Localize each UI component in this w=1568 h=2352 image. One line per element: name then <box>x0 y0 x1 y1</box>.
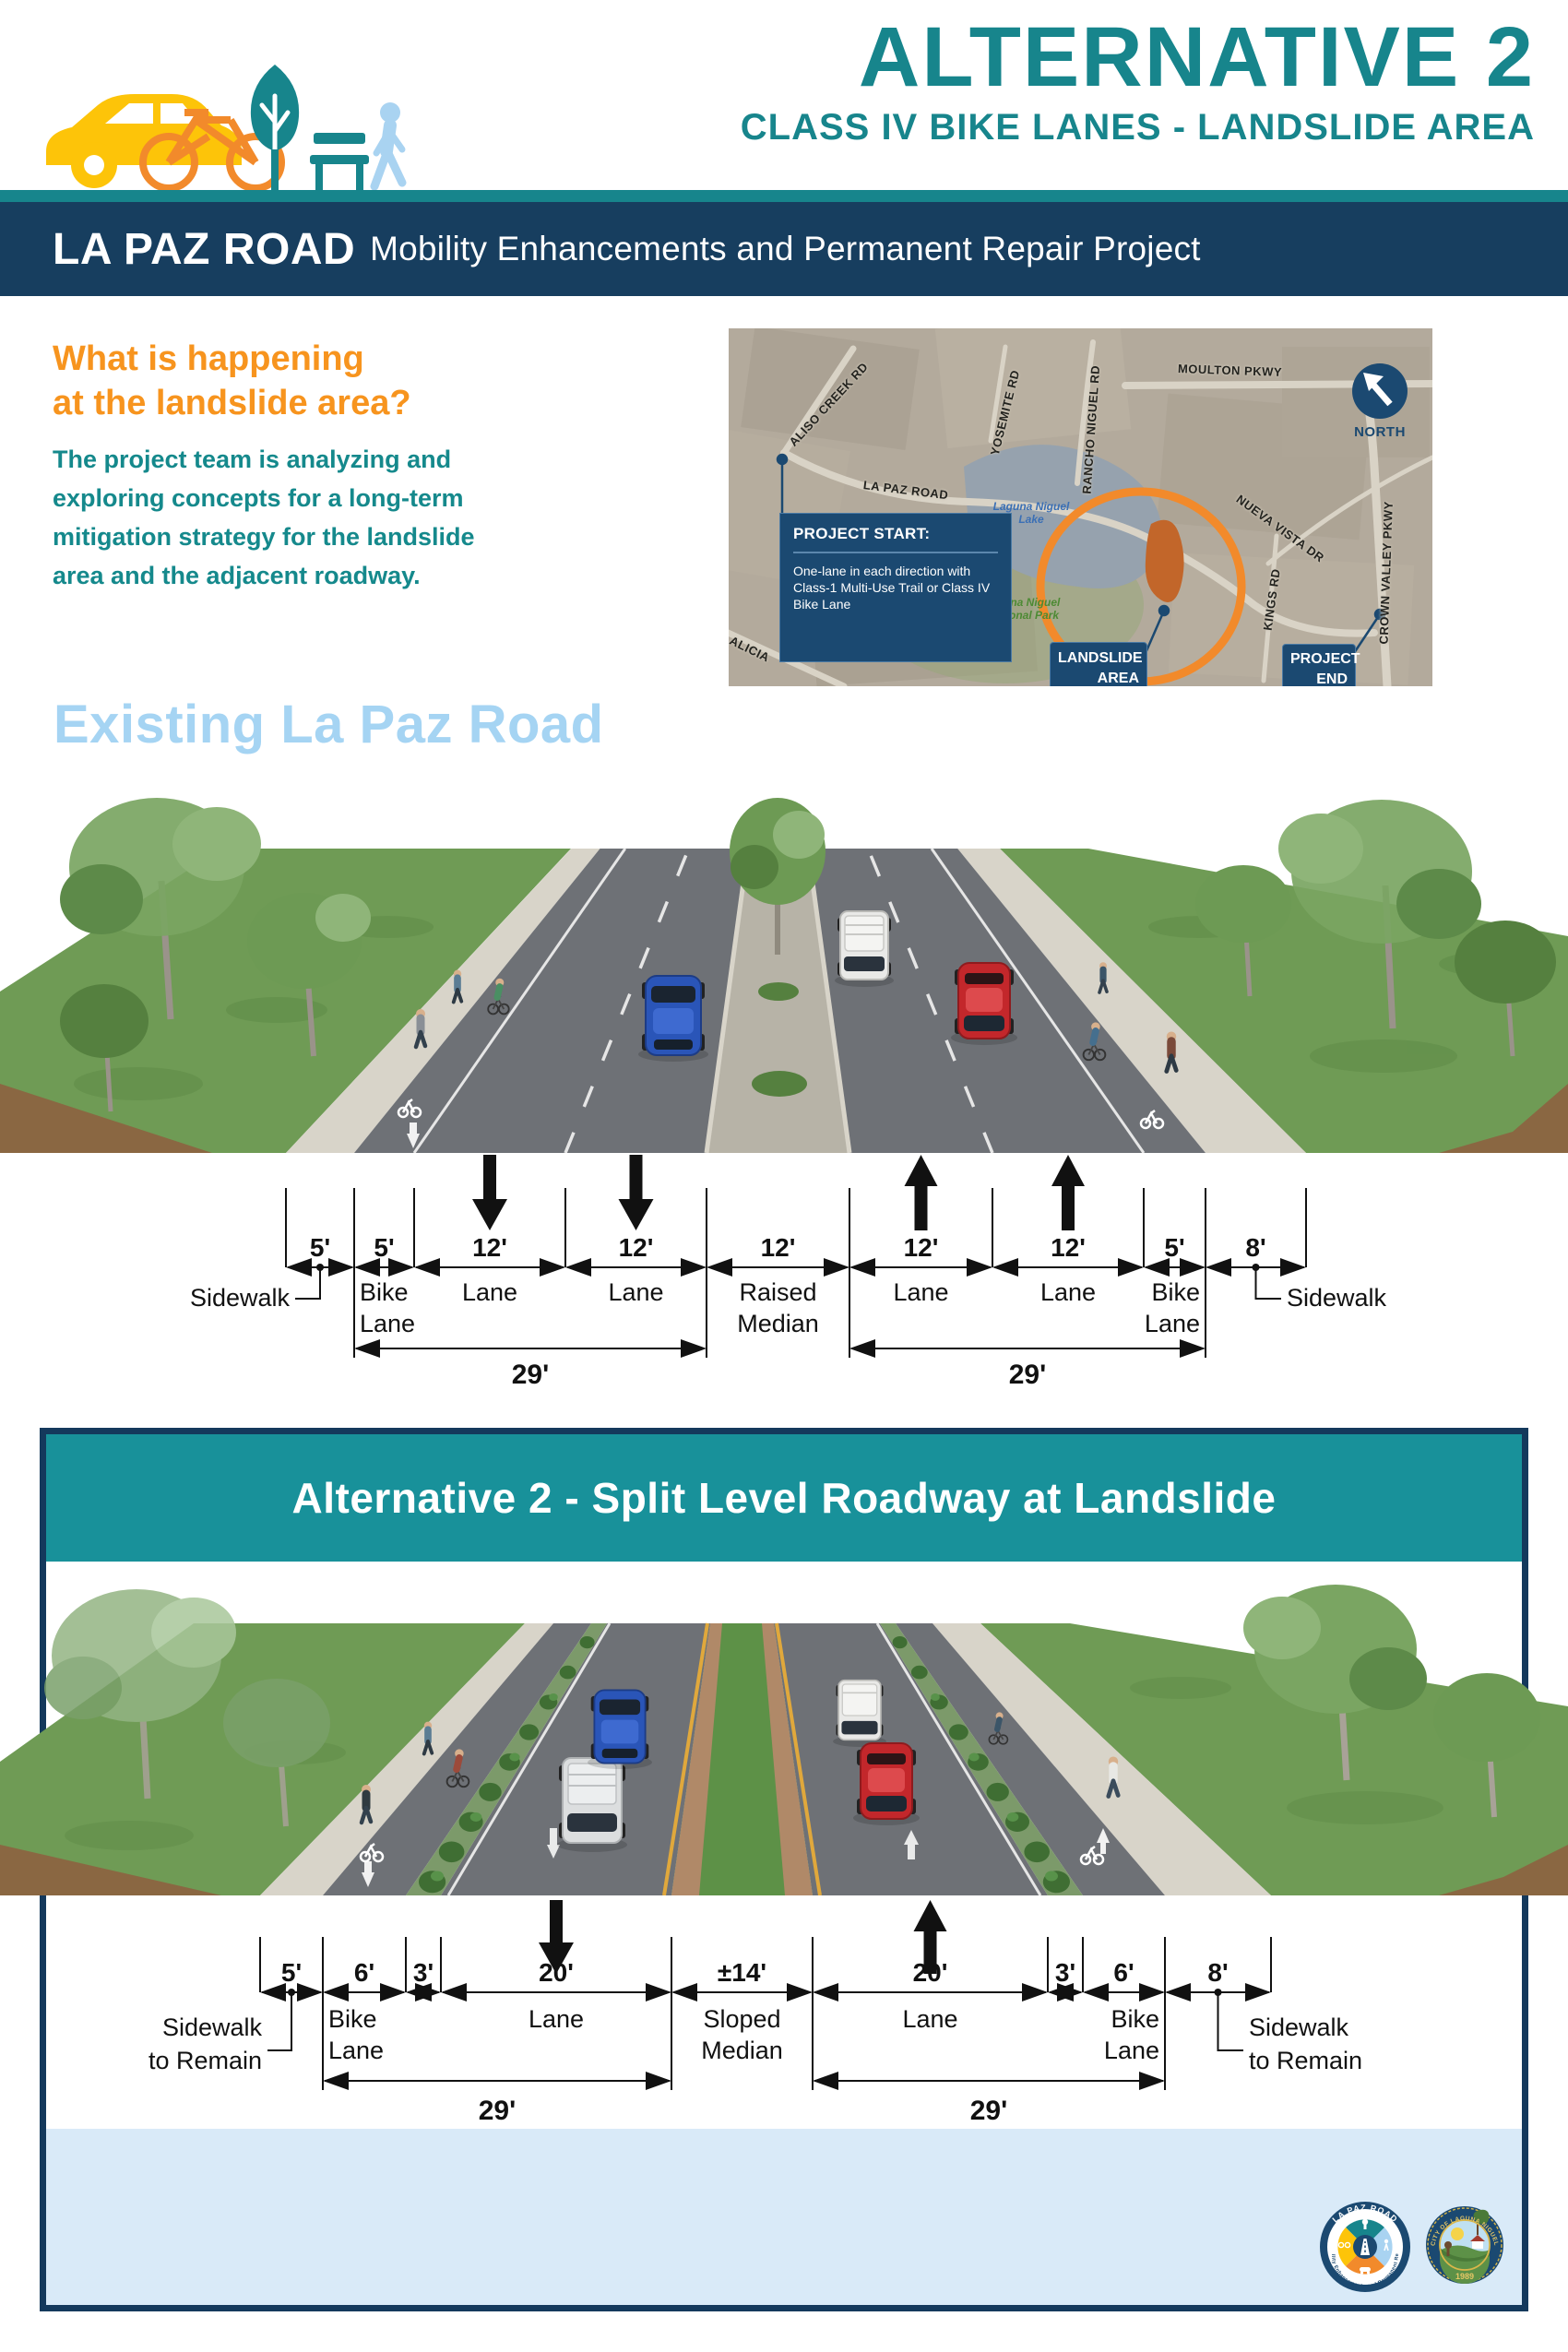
dim-value: 5' <box>374 1233 394 1262</box>
segment-label: Lane <box>608 1278 663 1306</box>
dim-value: 5' <box>281 1958 302 1987</box>
footer-band <box>46 2129 1522 2305</box>
north-arrow-icon <box>1352 363 1408 419</box>
dim-value: 8' <box>1245 1233 1265 1262</box>
dim-value: ±14' <box>718 1958 766 1987</box>
bench-icon <box>310 133 369 191</box>
dim-value: 6' <box>1113 1958 1134 1987</box>
dim-value: 12' <box>1051 1233 1086 1262</box>
segment-label: Lane <box>462 1278 517 1306</box>
segment-label: Lane <box>1040 1278 1096 1306</box>
intro-body: The project team is analyzing and explor… <box>53 441 500 595</box>
segment-label: Median <box>737 1310 819 1337</box>
truck-white <box>835 911 894 987</box>
truck-silver <box>557 1758 627 1852</box>
segment-label: Sidewalk <box>162 2013 263 2041</box>
existing-dimension-diagram: 5' 5' 12' 12' 12' 12' 12' 5' 8' Sidewalk… <box>0 1153 1568 1395</box>
dim-value: 5' <box>1164 1233 1184 1262</box>
segment-label: Bike <box>328 2005 377 2033</box>
segment-label: Lane <box>1145 1310 1200 1337</box>
landslide-area-callout: LANDSLIDE AREA <box>1050 642 1147 686</box>
page-subtitle: CLASS IV BIKE LANES - LANDSLIDE AREA <box>741 107 1535 148</box>
dim-value: 12' <box>472 1233 507 1262</box>
alternative-roadway-rendering <box>0 1568 1568 1895</box>
landslide-shape <box>1146 520 1184 602</box>
seal-year: 1989 <box>1455 2272 1474 2281</box>
dim-value: 12' <box>619 1233 654 1262</box>
span-value: 29' <box>970 2096 1008 2126</box>
project-start-callout: PROJECT START: One-lane in each directio… <box>779 513 1012 662</box>
segment-label: Bike <box>360 1278 409 1306</box>
segment-label: Sloped <box>703 2005 780 2033</box>
existing-roadway-rendering <box>0 779 1568 1153</box>
segment-label: to Remain <box>1249 2047 1362 2074</box>
segment-label: Sidewalk <box>190 1284 291 1312</box>
segment-label: Lane <box>902 2005 957 2033</box>
pedestrian-icon <box>374 102 402 186</box>
car-blue <box>588 1690 652 1769</box>
city-seal-logo: CITY OF LAGUNA NIGUEL 1989 <box>1426 2206 1503 2284</box>
dim-value: 20' <box>539 1958 574 1987</box>
segment-label: Sidewalk <box>1249 2013 1349 2041</box>
segment-label: Lane <box>328 2037 384 2064</box>
truck-white <box>833 1681 886 1747</box>
la-paz-road-logo: LA PAZ ROAD Mobility Enhancements and Pe… <box>1320 2202 1410 2292</box>
car-red <box>951 963 1017 1045</box>
dim-value: 12' <box>761 1233 796 1262</box>
segment-label: Raised <box>739 1278 816 1306</box>
teal-divider <box>0 190 1568 202</box>
segment-label: Sidewalk <box>1287 1284 1387 1312</box>
banner-road-name: LA PAZ ROAD <box>53 224 355 275</box>
segment-label: Lane <box>1104 2037 1159 2064</box>
dim-value: 8' <box>1207 1958 1228 1987</box>
dim-value: 5' <box>310 1233 330 1262</box>
car-blue <box>638 976 708 1062</box>
alternative-section-heading: Alternative 2 - Split Level Roadway at L… <box>46 1434 1522 1562</box>
page-title: ALTERNATIVE 2 <box>741 15 1535 100</box>
north-label: NORTH <box>1334 424 1426 440</box>
existing-section-heading: Existing La Paz Road <box>53 694 604 755</box>
span-value: 29' <box>1009 1360 1047 1390</box>
project-location-map: ALISO CREEK RD YOSEMITE RD RANCHO NIGUEL… <box>729 328 1432 686</box>
alternative-dimension-diagram: 5' 6' 3' 20' ±14' 20' 3' 6' 8' Sidewalk … <box>0 1895 1568 2133</box>
segment-label: Lane <box>360 1310 415 1337</box>
tree-icon <box>251 65 299 191</box>
dim-value: 6' <box>354 1958 374 1987</box>
span-value: 29' <box>479 2096 517 2126</box>
project-banner: LA PAZ ROAD Mobility Enhancements and Pe… <box>0 202 1568 296</box>
footer-logos: LA PAZ ROAD Mobility Enhancements and Pe… <box>1314 2199 1526 2300</box>
dim-value: 12' <box>904 1233 939 1262</box>
car-red <box>853 1743 920 1825</box>
banner-project-name: Mobility Enhancements and Permanent Repa… <box>370 230 1201 268</box>
header-icons <box>37 48 415 191</box>
span-value: 29' <box>512 1360 550 1390</box>
segment-label: Lane <box>529 2005 584 2033</box>
segment-label: Median <box>701 2037 783 2064</box>
segment-label: Lane <box>893 1278 948 1306</box>
dim-value: 20' <box>913 1958 948 1987</box>
segment-label: Bike <box>1111 2005 1159 2033</box>
intro-heading: What is happening at the landslide area? <box>53 338 411 425</box>
segment-label: Bike <box>1151 1278 1200 1306</box>
dim-value: 3' <box>413 1958 434 1987</box>
dim-value: 3' <box>1055 1958 1075 1987</box>
project-end-callout: PROJECT END <box>1282 644 1356 686</box>
segment-label: to Remain <box>148 2047 262 2074</box>
